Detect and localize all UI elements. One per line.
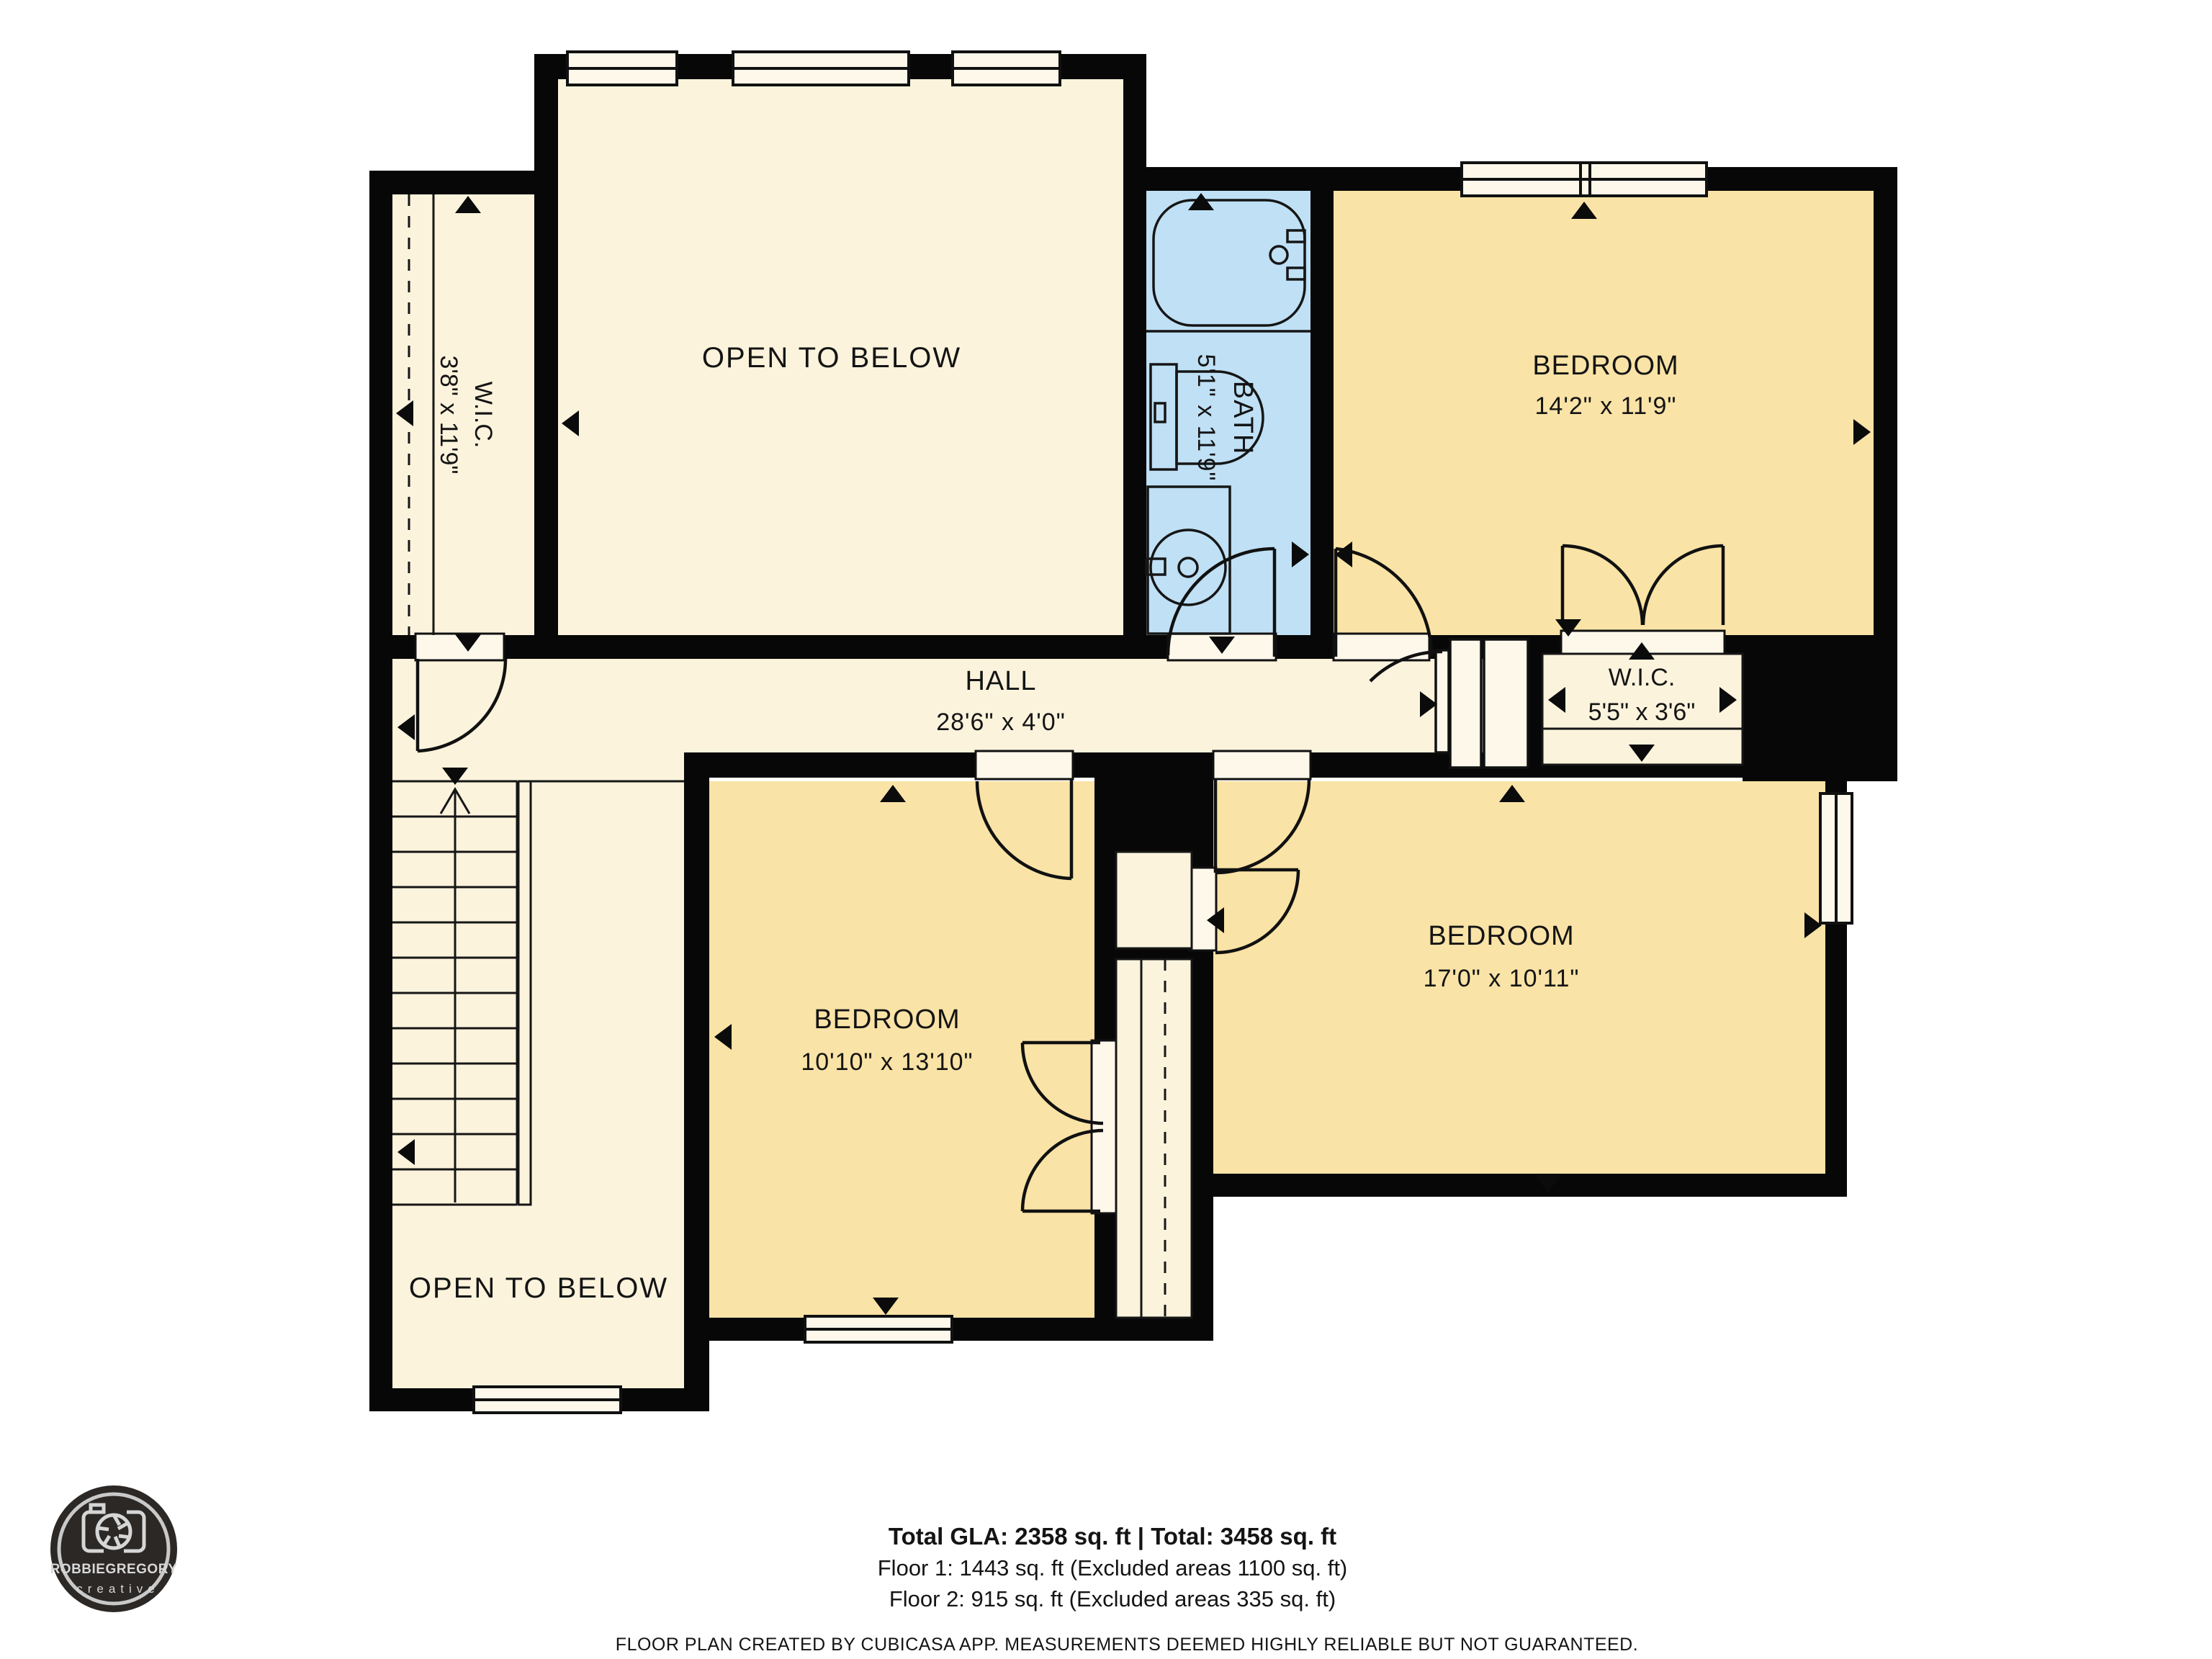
open-to-below-top-label: OPEN TO BELOW (702, 342, 961, 374)
svg-text:28'6" x 4'0": 28'6" x 4'0" (936, 709, 1066, 736)
bedroom-bottom-right-door-opening (1213, 751, 1310, 779)
wic-top-left-floor (392, 194, 534, 659)
window (567, 52, 677, 85)
floor1-area-line: Floor 1: 1443 sq. ft (Excluded areas 110… (878, 1555, 1348, 1581)
floor2-area-line: Floor 2: 915 sq. ft (Excluded areas 335 … (889, 1586, 1336, 1611)
closet-french-door-opening (1092, 1040, 1119, 1213)
window (953, 52, 1060, 85)
logo-brand-text: ROBBIEGREGORY (50, 1562, 178, 1577)
window (805, 1316, 952, 1342)
svg-text:W.I.C.: W.I.C. (469, 382, 497, 449)
logo-sub-text: creative (76, 1582, 160, 1596)
svg-text:5'1" x 11'9": 5'1" x 11'9" (1192, 354, 1220, 481)
window (1820, 793, 1852, 923)
window (474, 1387, 621, 1413)
robbiegregory-logo: ROBBIEGREGORY creative (50, 1485, 178, 1612)
svg-text:BEDROOM: BEDROOM (1532, 351, 1678, 381)
svg-text:14'2" x 11'9": 14'2" x 11'9" (1535, 392, 1677, 420)
hall-floor (392, 659, 1436, 752)
niche-outline (1116, 852, 1192, 948)
bedroom-top-right-floor (1334, 191, 1874, 659)
svg-text:BEDROOM: BEDROOM (814, 1004, 960, 1035)
footer: Total GLA: 2358 sq. ft | Total: 3458 sq.… (616, 1523, 1638, 1655)
svg-text:3'8" x 11'9": 3'8" x 11'9" (435, 355, 462, 474)
closet-outline (1116, 959, 1192, 1318)
floor-plan-canvas: OPEN TO BELOW W.I.C. 3'8" x 11'9" BATH 5… (0, 0, 2212, 1659)
svg-text:10'10" x 13'10": 10'10" x 13'10" (801, 1048, 973, 1076)
window (1462, 163, 1707, 196)
svg-text:W.I.C.: W.I.C. (1609, 664, 1676, 691)
svg-text:HALL: HALL (965, 666, 1036, 696)
floor-plan-page: OPEN TO BELOW W.I.C. 3'8" x 11'9" BATH 5… (0, 0, 2212, 1659)
svg-text:BATH: BATH (1228, 381, 1258, 455)
closet-shelf-panel (1450, 639, 1481, 768)
svg-text:BEDROOM: BEDROOM (1428, 921, 1574, 951)
total-area-line: Total GLA: 2358 sq. ft | Total: 3458 sq.… (889, 1523, 1336, 1550)
open-to-below-bottom-label: OPEN TO BELOW (409, 1272, 668, 1304)
window (733, 52, 909, 85)
bedroom-bottom-left-door-opening (976, 751, 1073, 779)
svg-text:17'0" x 10'11": 17'0" x 10'11" (1424, 965, 1580, 992)
disclaimer-line: FLOOR PLAN CREATED BY CUBICASA APP. MEAS… (616, 1635, 1638, 1655)
niche-door-opening (1189, 868, 1216, 950)
svg-text:5'5" x 3'6": 5'5" x 3'6" (1588, 698, 1696, 726)
closet-shelf-panel (1484, 639, 1528, 768)
